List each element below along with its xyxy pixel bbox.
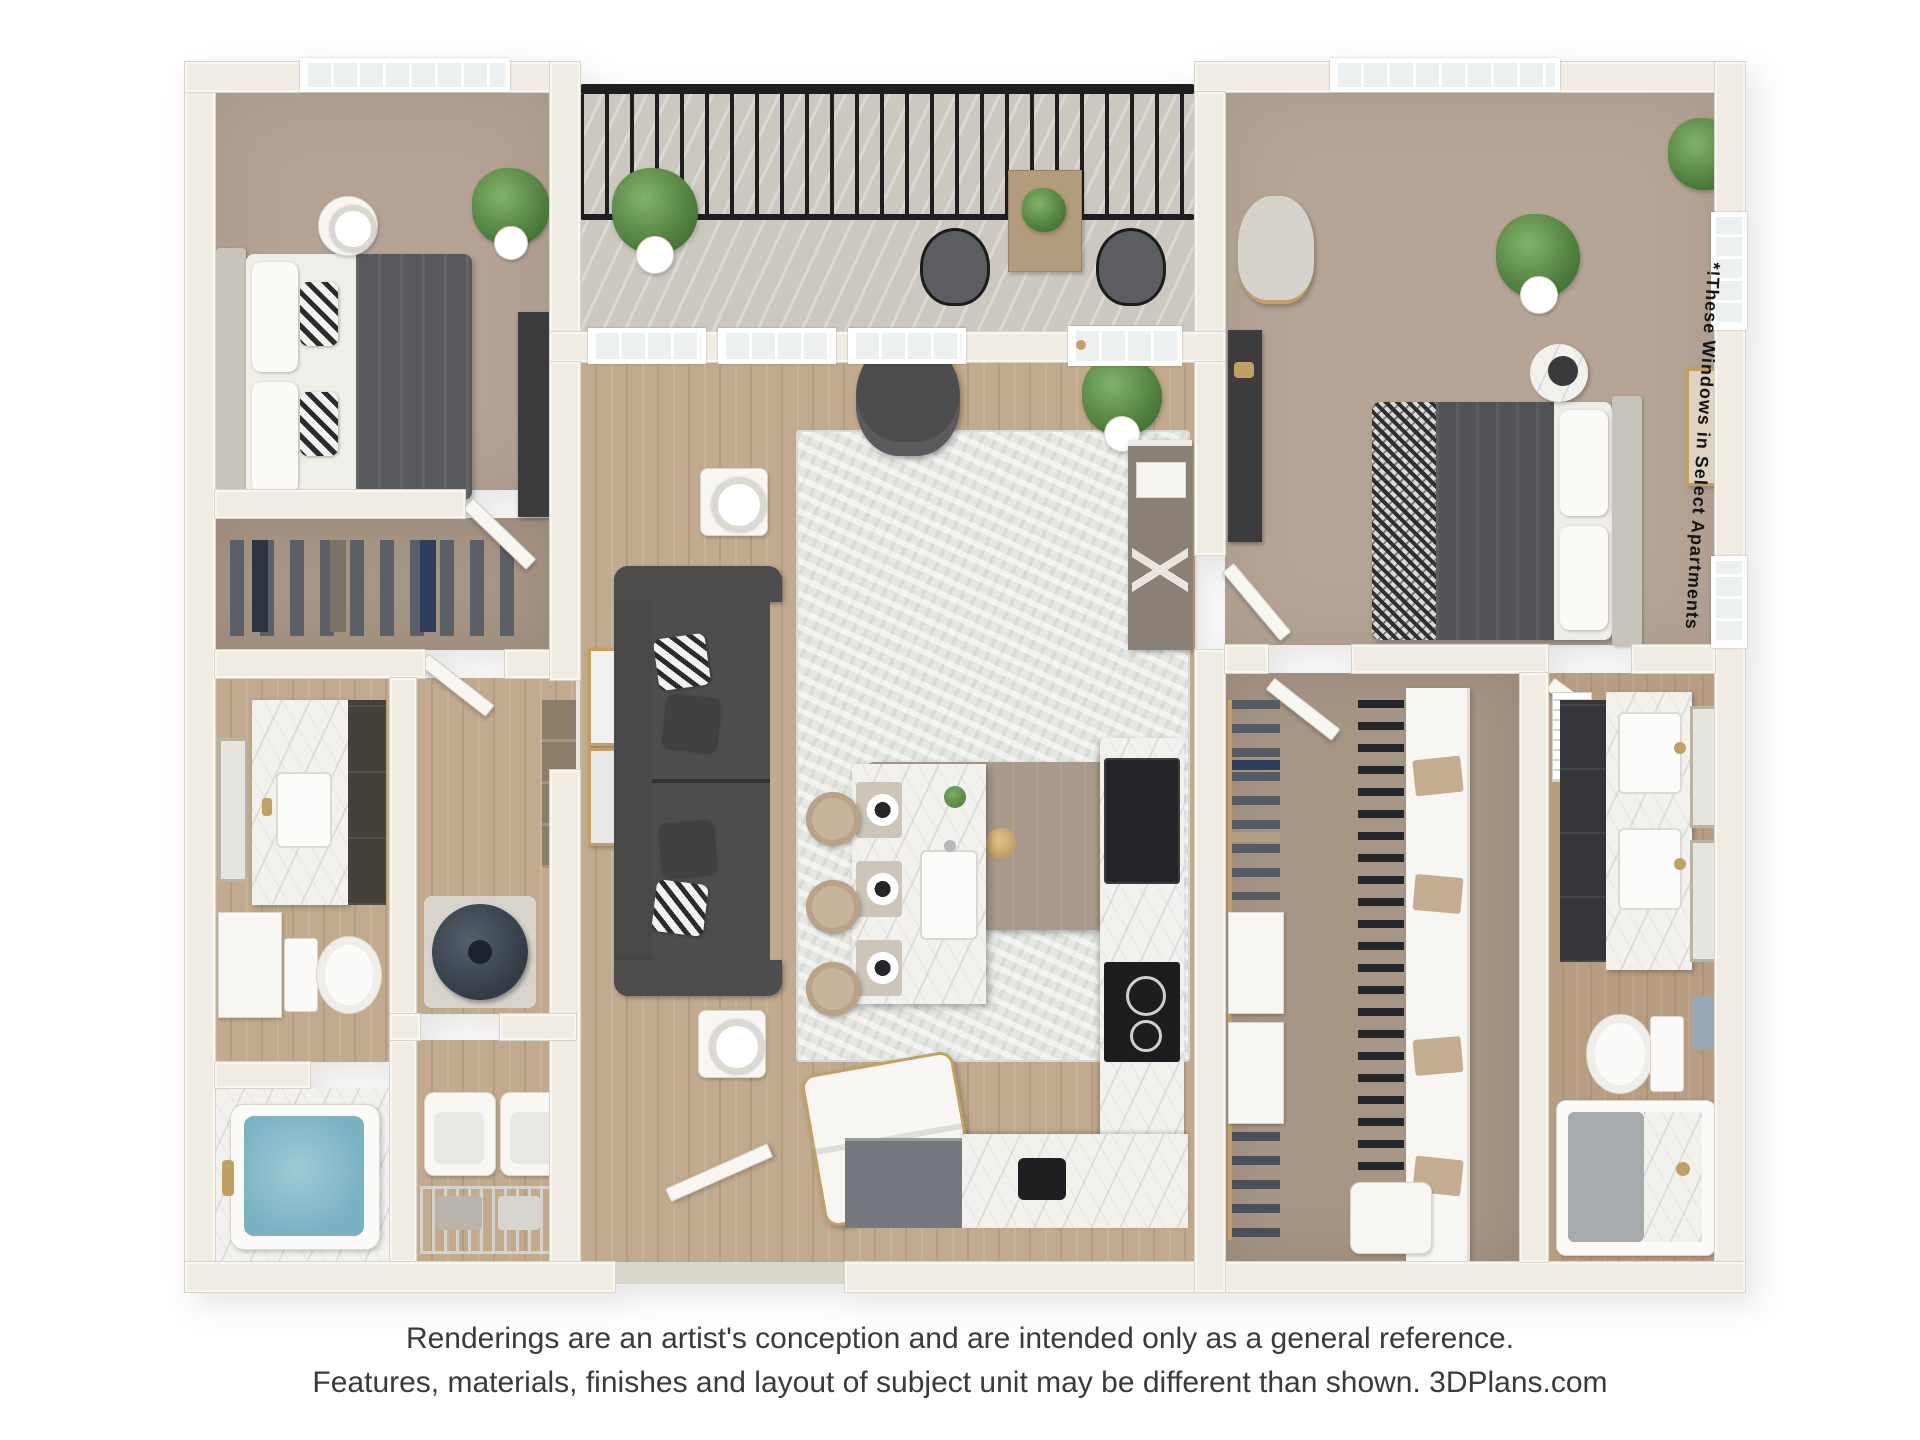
sofa-pillow-pattern [653,633,712,692]
disclaimer-line-1: Renderings are an artist's conception an… [0,1316,1920,1362]
toilet-1-bowl [316,936,382,1014]
balcony-glass-door [1068,326,1182,366]
window-glass [305,63,505,87]
water-heater-cap [468,940,492,964]
toilet-2-bowl [1586,1014,1654,1094]
window-glass [1335,63,1555,87]
cooktop-burner [1130,1020,1162,1052]
island-plant [944,786,966,808]
bedroom-2-lamp [1548,356,1578,386]
bathroom-2-faucet [1674,742,1686,754]
entry-threshold [615,1262,845,1284]
closet-1-clothes [230,540,530,636]
balcony-railing-top-bar [580,84,1195,94]
bed-2-houndstooth-throw [1372,402,1436,640]
closet-drawer-unit [1228,912,1284,1014]
closet-clothes-left [1232,700,1280,900]
refrigerator [1104,758,1180,884]
closet-1-clothes-item [420,540,436,632]
closet-1-clothes-item [252,540,268,632]
bedroom-2-dresser-decor [1234,362,1254,378]
balcony-plant-pot [636,236,674,274]
wall [390,1014,420,1040]
bathtub-2-marble-wall [1644,1112,1702,1242]
bathroom-2-sink [1618,712,1682,794]
bathtub-1-faucet [222,1160,234,1196]
island-placemat [856,782,902,838]
bed-1-pillow [252,382,298,494]
bed-2-blanket [1436,402,1554,640]
bathroom-2-towel [1692,996,1714,1050]
balcony-table-plant [1022,188,1066,232]
sofa-pillow [661,693,720,752]
disclaimer-line-2: Features, materials, finishes and layout… [0,1360,1920,1406]
island-placemat [856,861,902,917]
island-faucet [944,840,956,852]
balcony-chair-left [920,228,990,306]
bathroom-2-faucet [1674,858,1686,870]
closet-drawer-unit [1228,1022,1284,1124]
sofa-arm-north [614,566,782,602]
bed-1-pillow [252,262,298,372]
bathroom-1-faucet [262,798,272,816]
wall [215,490,465,518]
balcony-chair-right [1096,228,1166,306]
bedroom-1-plant-pot [494,226,528,260]
cooktop-burner [1126,976,1166,1016]
bed-1-accent-pillow [300,282,338,346]
wall [1352,645,1548,673]
coffee-table-gold-bowl [986,828,1016,858]
bed-2-pillow [1560,410,1608,516]
bathroom-1-mirror [218,738,248,882]
floor-plan [0,0,1920,1440]
closet-box [1413,1036,1464,1076]
living-room-window [718,328,836,364]
laundry-shelf-items [498,1196,540,1230]
closet-box [1412,756,1464,797]
wall [185,1262,615,1292]
bathtub-2-pan [1568,1112,1644,1242]
door-glass [1073,331,1177,361]
bed-2-headboard [1612,396,1642,646]
toilet-1-tank [284,938,318,1012]
bar-stool [806,962,860,1016]
bedroom-1-dresser-tv [518,312,550,517]
bedroom-1-window [300,58,510,92]
closet-bottom-cabinet [1350,1182,1432,1254]
sofa-pillow [658,820,717,879]
bar-stool [806,880,860,934]
bedroom-2-right-window-lower [1711,556,1747,648]
bathroom-2-sink [1618,828,1682,910]
lamp-north [712,478,766,532]
living-room-window [848,328,966,364]
bathroom-2-vanity-cabinet [1560,700,1606,962]
wall [1195,92,1225,362]
kitchen-counter-south [962,1134,1188,1228]
wall [550,362,580,680]
bedroom-2-chair [1238,196,1314,304]
bed-1-blanket [356,254,472,500]
window-glass [853,333,961,359]
wall [215,650,425,678]
bathroom-1-sink [276,772,332,848]
wall [505,650,550,678]
wall [215,1062,310,1088]
wall [1520,673,1548,1262]
lamp-south [710,1020,764,1074]
bed-1-headboard [216,248,246,506]
bed-2-pillow [1560,526,1608,630]
wall [1225,645,1268,673]
closet-clothes-item [1232,760,1280,770]
closet-clothes-right [1358,700,1404,1200]
closet-box [1413,874,1464,914]
closet-clothes-left-lower [1232,1132,1280,1252]
sideboard-x-detail [1132,510,1188,630]
closet-1-clothes-item [330,540,346,632]
laundry-shelf-items [436,1196,482,1230]
window-glass [1716,561,1742,643]
bedroom-2-plant-pot [1520,276,1558,314]
bathtub-2-fixture [1676,1162,1690,1176]
island-sink [920,850,978,940]
wall [390,678,416,1014]
bathroom-1-storage-cabinet [218,912,282,1018]
window-glass [723,333,831,359]
wall [185,62,215,1292]
bedroom-2-window [1330,58,1560,92]
wall [500,1014,576,1040]
wall [1632,645,1715,673]
closet-clothes-item [1232,832,1280,842]
sideboard-tray [1136,462,1186,498]
sofa-arm-south [614,960,782,996]
washer-lid [434,1112,484,1164]
island-placemat [856,940,902,996]
wall [390,1040,416,1262]
sofa-pillow-pattern [651,879,709,937]
window-glass [593,333,701,359]
wall [845,1262,1745,1292]
wall [1195,362,1225,555]
bedroom-1-lamp [330,206,376,252]
toilet-2-tank [1650,1016,1684,1092]
bathroom-1-vanity-cabinet [348,700,386,905]
pantry-cabinet [845,1138,962,1228]
bathtub-1-water [244,1116,364,1236]
wall [1195,650,1225,1292]
sofa-back [614,600,652,962]
bed-1-accent-pillow [300,392,338,456]
coffee-maker [1018,1158,1066,1200]
bar-stool [806,792,860,846]
door-handle [1076,340,1086,350]
wall [550,62,580,362]
living-room-window [588,328,706,364]
